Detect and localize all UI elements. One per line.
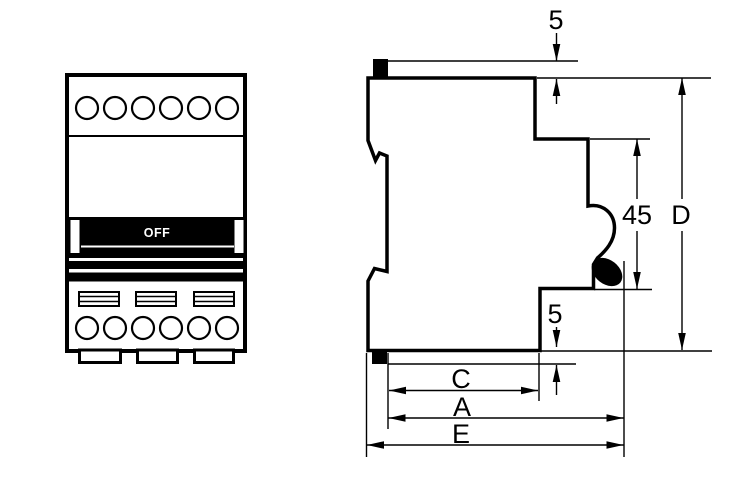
dim-base-width-label: C [451,364,471,394]
off-label: OFF [144,226,171,240]
dim-bottom-offset-label: 5 [547,299,562,329]
mounting-tab [195,350,234,363]
recess-side-right [235,220,244,253]
dim-total-width: E [367,419,624,449]
front-stripe-2 [69,273,245,282]
extension-lines [367,61,713,457]
mounting-tab [80,350,121,363]
front-view: OFF [67,75,245,363]
dim-total-height: D [671,78,691,350]
bottom-tabs [80,350,234,363]
bottom-clip-foot [372,351,387,364]
front-stripe-1 [69,261,245,269]
drawing-canvas: OFF [0,0,745,493]
dim-recess-height: 45 [622,139,652,289]
dim-bottom-offset: 5 [547,299,562,395]
dim-recess-height-label: 45 [622,200,652,230]
side-view: 5 45 D 5 [367,5,713,457]
dimension-drawing: OFF [0,0,745,493]
mounting-tab [138,350,178,363]
dim-top-offset: 5 [548,5,563,104]
dim-body-width: A [389,392,624,422]
recess-side-left [71,220,80,253]
breaker-body-profile [368,78,615,351]
dim-top-offset-label: 5 [548,5,563,35]
top-clip-nib [373,59,388,77]
dim-total-height-label: D [671,200,691,230]
dim-base-width: C [389,364,538,394]
